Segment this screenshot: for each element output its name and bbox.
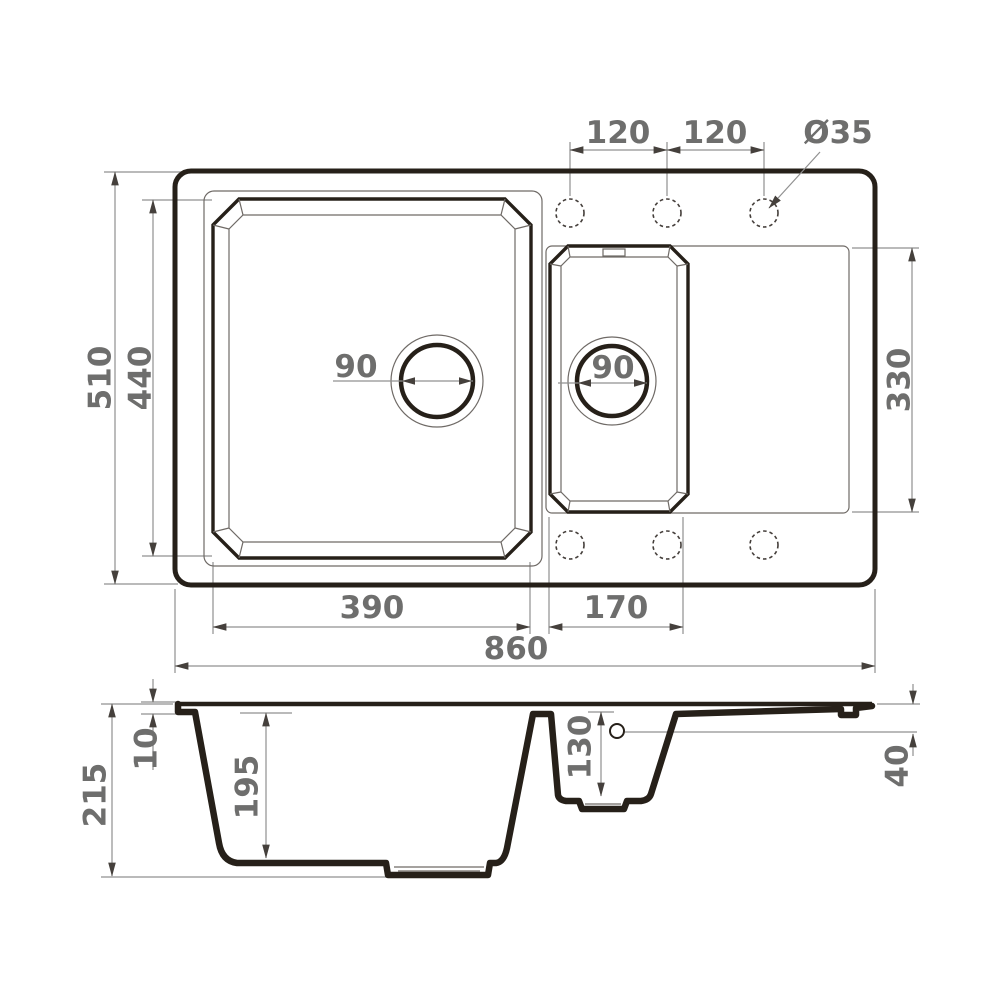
bevel-line [239,199,243,215]
dim-main-bowl-section-depth: 195 [230,755,266,820]
dim-leader-hole-dia [769,152,820,208]
dim-rim-height: 10 [129,727,165,770]
bevel-line [501,199,505,215]
bevel-line [213,225,229,229]
bevel-line [239,542,243,558]
dim-faucet-spacing-1: 120 [586,115,651,151]
dim-drainboard-depth: 330 [882,348,918,413]
sink-outer-edge [175,171,875,585]
faucet-hole [750,531,778,559]
section-profile [178,704,872,875]
dim-small-bowl-section-depth: 130 [563,715,599,780]
dim-small-drain-diameter: 90 [591,350,634,386]
faucet-holes [556,199,778,559]
arrowhead [459,377,472,385]
bevel-line [515,225,531,229]
faucet-hole [653,531,681,559]
faucet-hole [556,199,584,227]
dim-faucet-spacing-2: 120 [683,115,748,151]
arrowhead [402,377,415,385]
dim-main-drain-diameter: 90 [334,349,377,385]
drawing-canvas: 120 120 Ø35 510 440 330 390 170 860 90 9… [0,0,1000,1000]
section-view [178,704,872,875]
small-bowl-overflow-notch [603,249,625,256]
overflow-hole [610,724,624,738]
arrowhead [578,379,591,387]
extension-lines [101,142,920,877]
bevel-line [501,542,505,558]
bevel-line [515,528,531,532]
dim-faucet-hole-diameter: Ø35 [803,115,873,151]
faucet-hole [556,531,584,559]
dim-overall-width: 860 [484,631,549,667]
plan-view [175,171,875,585]
dim-main-bowl-inner-depth: 440 [123,346,159,411]
faucet-hole [653,199,681,227]
dim-small-bowl-width: 170 [584,590,649,626]
dim-section-overall-height: 215 [78,763,114,828]
bevel-line [213,528,229,532]
dim-drainboard-edge-height: 40 [880,744,916,787]
dim-overall-depth: 510 [83,346,119,411]
sink-technical-drawing: 120 120 Ø35 510 440 330 390 170 860 90 9… [0,0,1000,1000]
dim-main-bowl-width: 390 [340,590,405,626]
